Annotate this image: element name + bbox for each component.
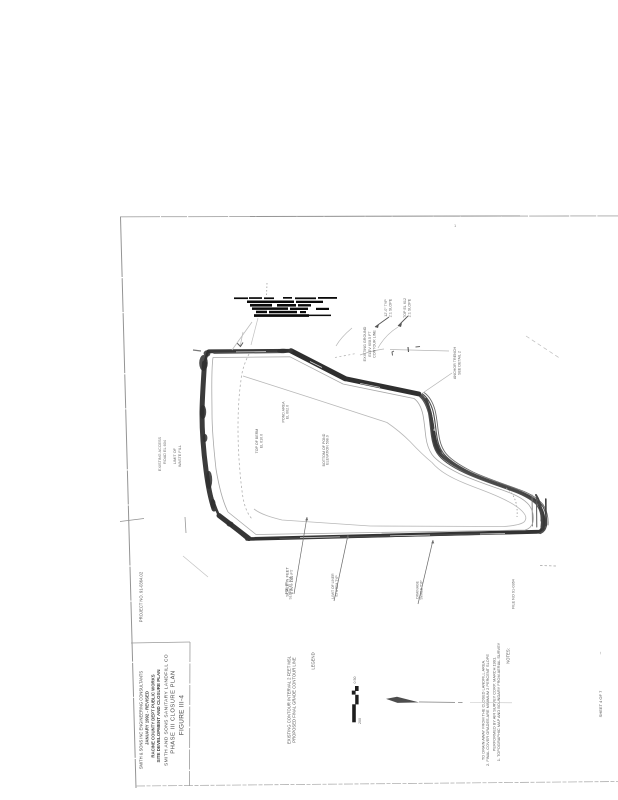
svg-text:SWALE TYP: SWALE TYP: [420, 580, 424, 600]
svg-text:SHEET 4 OF 7: SHEET 4 OF 7: [598, 690, 603, 717]
svg-text:SEE DETAIL 2: SEE DETAIL 2: [458, 351, 462, 375]
svg-text:JANUARY 1992 - REVISED: JANUARY 1992 - REVISED: [145, 691, 150, 745]
svg-text:EXISTING GROUND: EXISTING GROUND: [363, 326, 367, 361]
svg-text:1 IN = 100 FT: 1 IN = 100 FT: [289, 569, 294, 594]
svg-text:2. FINAL COVER GRADES ARE MINI: 2. FINAL COVER GRADES ARE MINIMUM 2 PERC…: [485, 654, 490, 766]
svg-text:LIMIT OF: LIMIT OF: [173, 447, 177, 464]
svg-text:200: 200: [358, 718, 362, 724]
svg-text:SMITH & SONS INC ENGINEERING C: SMITH & SONS INC ENGINEERING CONSULTANTS: [139, 671, 144, 770]
svg-text:2:1 SLOPE: 2:1 SLOPE: [408, 298, 412, 317]
svg-text:RACINE COUNTY DEPT PUBLIC WORK: RACINE COUNTY DEPT PUBLIC WORKS: [151, 674, 156, 757]
svg-text:ELEVATION 598.0: ELEVATION 598.0: [326, 435, 330, 465]
svg-text:1. TOPOGRAPHIC MAP AND BOUNDAR: 1. TOPOGRAPHIC MAP AND BOUNDARY FROM AER…: [496, 642, 501, 761]
svg-text:PROPOSED FINAL GRADE CONTOUR L: PROPOSED FINAL GRADE CONTOUR LINE: [292, 657, 297, 743]
svg-text:TOP EL 612: TOP EL 612: [403, 298, 407, 318]
svg-text:ANCHOR TRENCH: ANCHOR TRENCH: [453, 347, 457, 380]
svg-text:LEGEND: LEGEND: [311, 652, 316, 669]
svg-text:WASTE FILL: WASTE FILL: [178, 445, 182, 467]
svg-text:TO DRAIN AWAY FROM THE CLOSED: TO DRAIN AWAY FROM THE CLOSED LANDFILL A…: [481, 660, 486, 760]
svg-text:FIGURE III-4: FIGURE III-4: [179, 695, 186, 736]
svg-text:NOTES:: NOTES:: [506, 648, 511, 664]
svg-text:EL 610.0: EL 610.0: [260, 434, 264, 448]
svg-text:CONTOUR LINE: CONTOUR LINE: [373, 330, 377, 358]
svg-text:SMITH AND SONS SANITARY LANDFI: SMITH AND SONS SANITARY LANDFILL CO: [164, 654, 170, 766]
svg-text:PERFORMED BY AIR SURVEY CORP.: PERFORMED BY AIR SURVEY CORP. MARCH 1991…: [492, 657, 497, 751]
svg-text:FILE NO 91-0364: FILE NO 91-0364: [512, 579, 516, 609]
svg-text:PROJECT NO. 91-0364.02: PROJECT NO. 91-0364.02: [139, 571, 144, 622]
svg-text:0 50: 0 50: [353, 677, 357, 684]
svg-text:ROAD EL 604: ROAD EL 604: [163, 440, 167, 464]
svg-text:TOP OF BERM: TOP OF BERM: [255, 429, 259, 454]
svg-text:SITE DEVELOPMENT AND CLOSURE P: SITE DEVELOPMENT AND CLOSURE PLAN: [156, 669, 161, 762]
svg-text:EXISTING ACCESS: EXISTING ACCESS: [158, 436, 162, 471]
svg-text:SYSTEM TYP: SYSTEM TYP: [335, 575, 339, 597]
svg-text:12'-0" TYP: 12'-0" TYP: [384, 299, 388, 317]
svg-text:PHASE III CLOSURE PLAN: PHASE III CLOSURE PLAN: [171, 670, 177, 753]
svg-text:EL 602.0: EL 602.0: [286, 405, 290, 419]
svg-text:ELEV 608.5 FT: ELEV 608.5 FT: [368, 331, 372, 357]
svg-text:2:1 SLOPE: 2:1 SLOPE: [389, 298, 393, 317]
